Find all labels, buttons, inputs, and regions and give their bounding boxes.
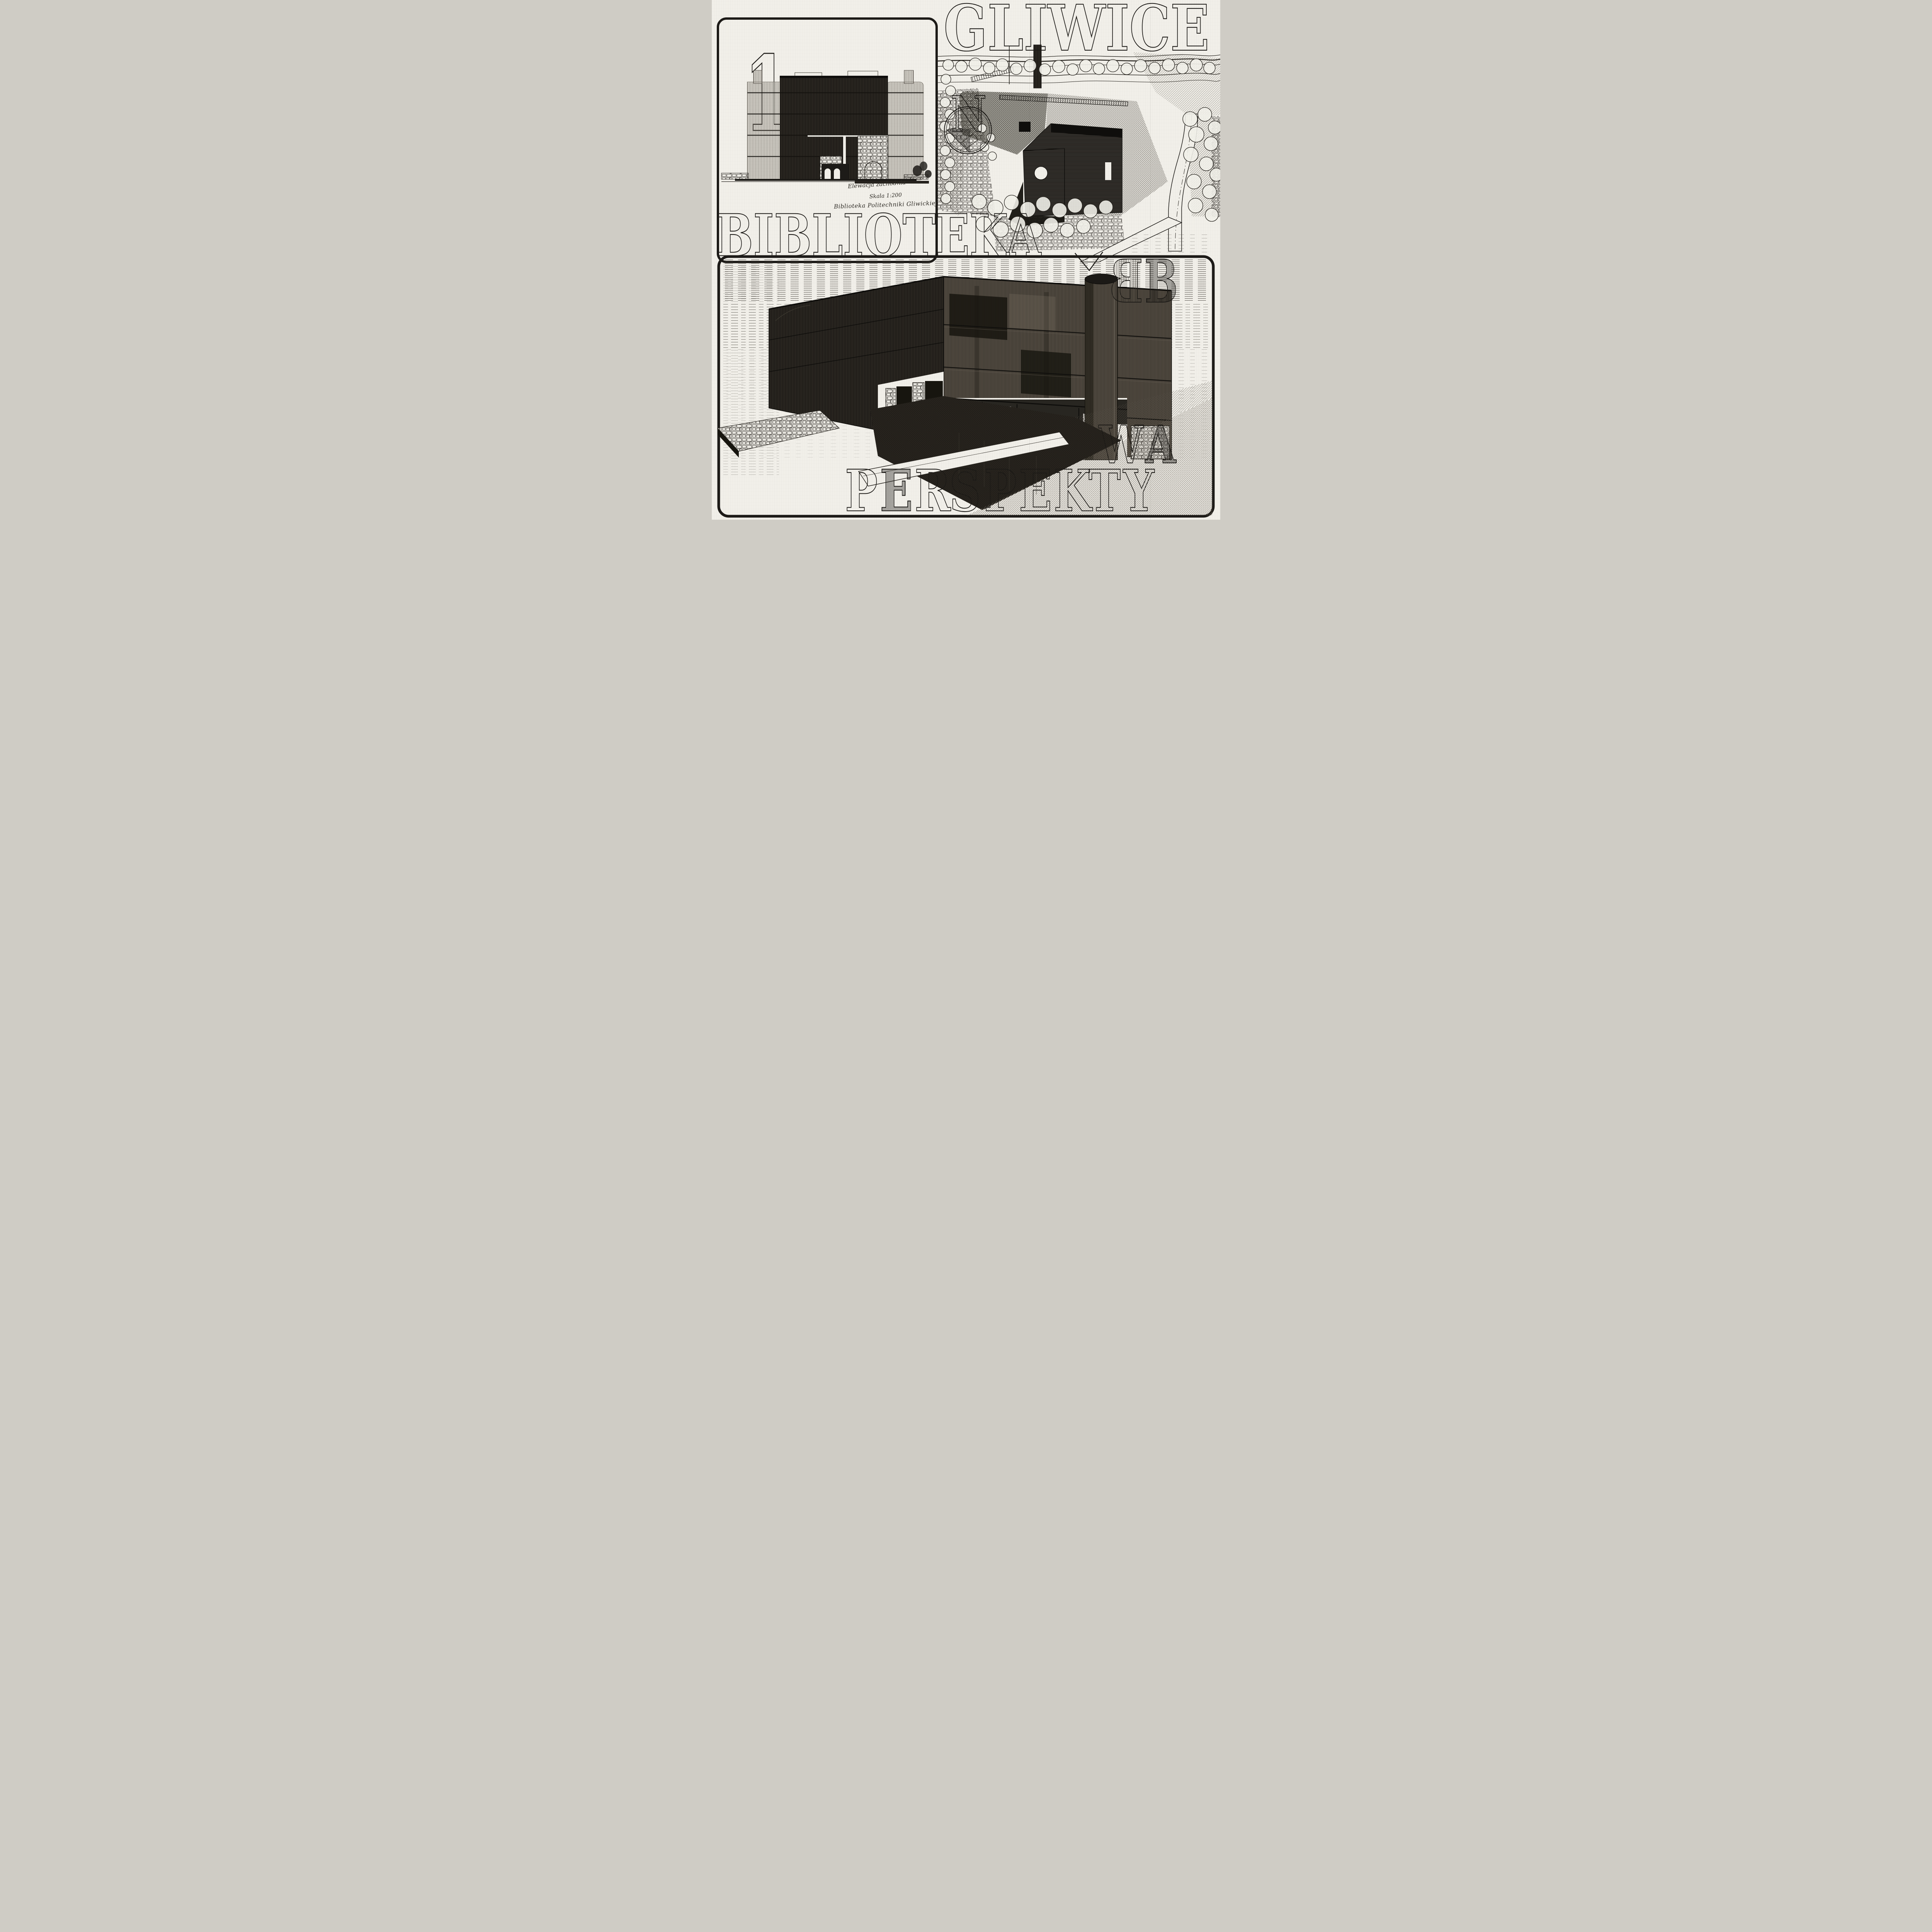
- paper-fold-line: [1150, 0, 1151, 520]
- title-letter-e2: E: [1019, 457, 1052, 520]
- title-perspektywa: P E R S P E K T Y: [845, 457, 1155, 520]
- title-letter-e1: E: [880, 457, 913, 520]
- monogram-letter: B: [1145, 247, 1178, 316]
- title-biblioteka: BIBLIOTEKA: [716, 202, 1041, 270]
- roof-opening: [1105, 162, 1111, 180]
- roof-skylight: [1034, 167, 1048, 180]
- title-letter-p2: P: [984, 457, 1017, 520]
- title-letter-r: R: [915, 457, 951, 520]
- paper-fold-line: [1029, 0, 1030, 520]
- title-letter-y: Y: [1122, 457, 1155, 520]
- title-gliwice: GLIWICE: [944, 0, 1209, 65]
- elevation-drawing: [721, 70, 932, 184]
- monogram-letter-mirrored: B: [1110, 247, 1143, 316]
- board-drawing: 1: [712, 0, 1220, 520]
- title-letter-s: S: [949, 457, 981, 520]
- title-letter-t: T: [1088, 457, 1121, 520]
- presentation-board: 1: [712, 0, 1220, 520]
- title-letter-p1: P: [845, 457, 878, 520]
- title-letter-k: K: [1054, 457, 1093, 520]
- perspective-panel: B B W A P E R S P E K T Y: [718, 232, 1213, 520]
